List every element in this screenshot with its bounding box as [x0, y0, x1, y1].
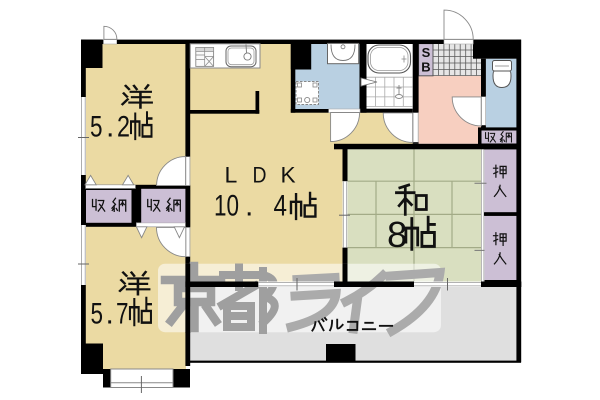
svg-text:S: S [422, 45, 431, 60]
svg-text:D: D [253, 163, 267, 188]
svg-text:L: L [225, 163, 238, 188]
svg-text:5: 5 [91, 298, 104, 331]
svg-text:.: . [106, 298, 114, 331]
svg-text:7: 7 [116, 298, 129, 331]
svg-text:K: K [281, 163, 296, 188]
svg-text:.: . [106, 111, 114, 144]
svg-text:5: 5 [90, 111, 103, 144]
svg-text:2: 2 [117, 111, 130, 144]
svg-text:8: 8 [387, 214, 407, 255]
svg-text:.: . [245, 189, 253, 222]
svg-text:4: 4 [274, 189, 288, 222]
svg-text:10: 10 [214, 189, 239, 222]
svg-text:B: B [421, 60, 430, 75]
